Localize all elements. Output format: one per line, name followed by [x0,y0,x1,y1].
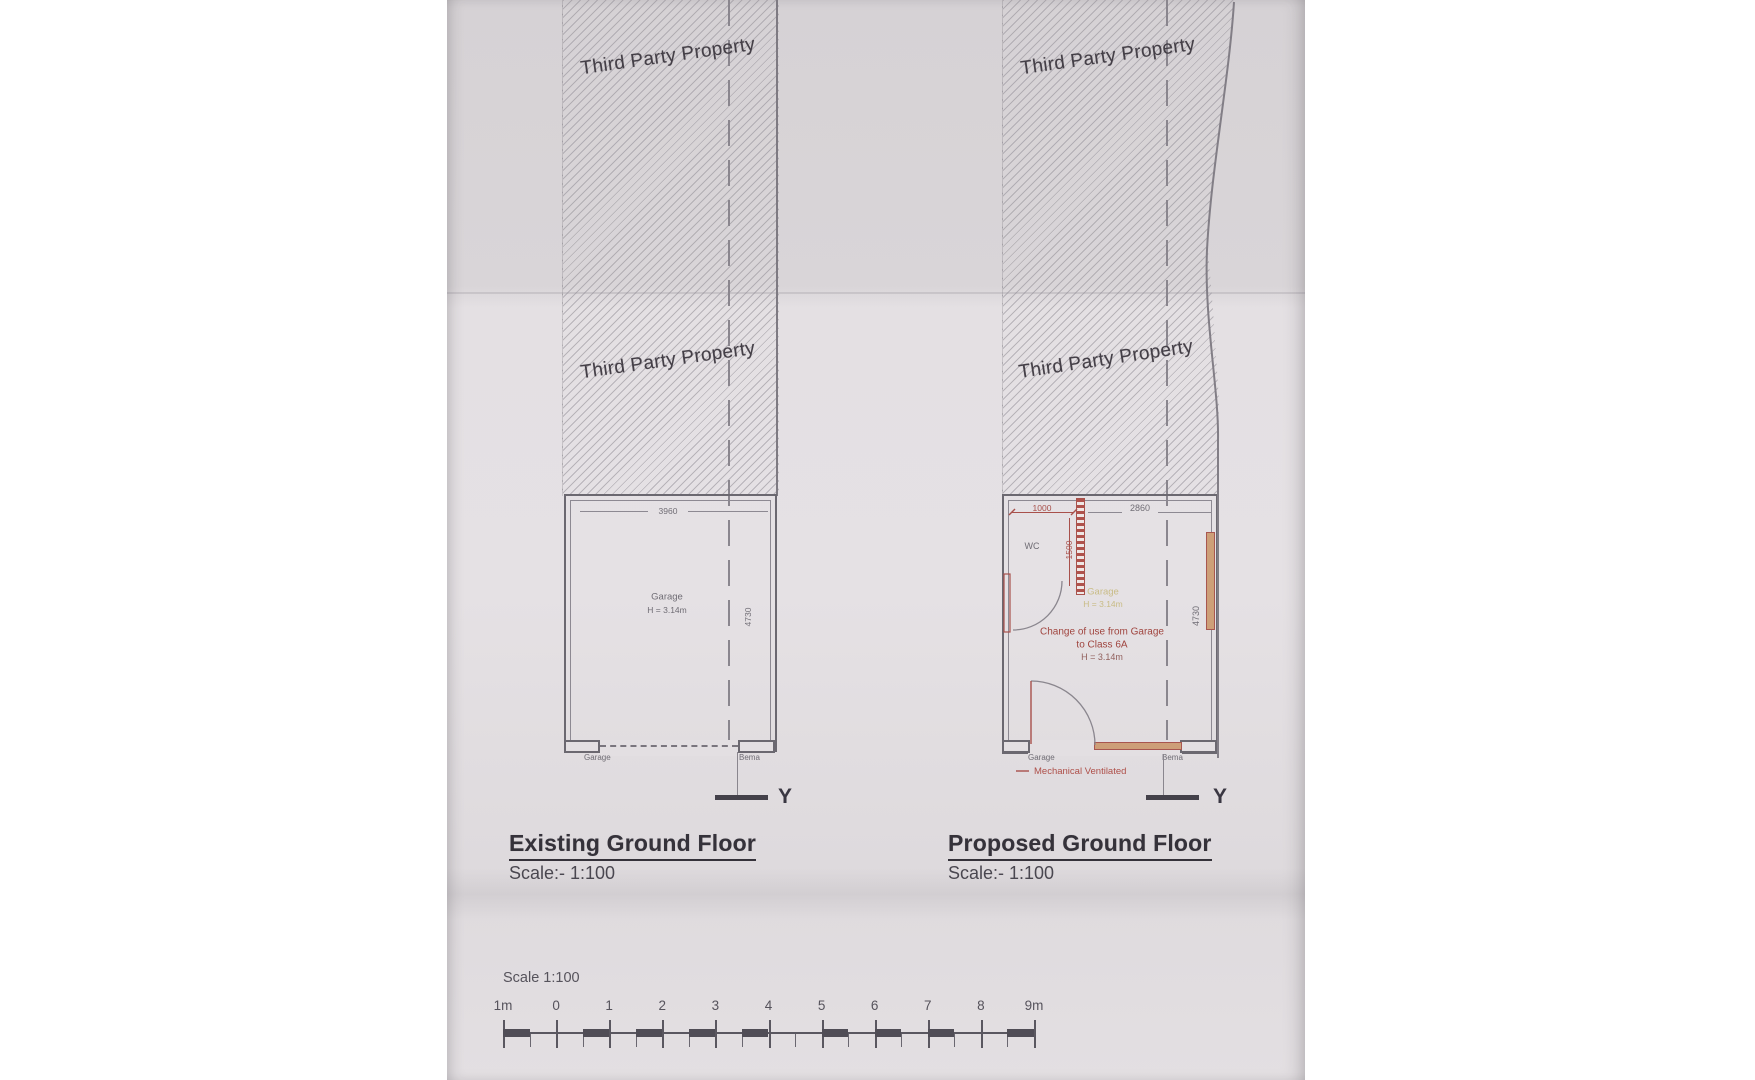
proposed-side-label: Bema [1162,753,1183,762]
infilled-garage-door [1094,742,1182,750]
ruler-half-tick [795,1034,796,1047]
boundary-line-existing [776,0,778,496]
existing-wall-stub-right [738,740,775,753]
ruler-number: 7 [924,998,932,1013]
ruler-number: 9m [1025,998,1044,1013]
existing-depth-dimension: 4730 [743,608,753,627]
ruler-tick [556,1020,558,1048]
ruler-number: 8 [977,998,985,1013]
proposed-depth-dimension: 4730 [1191,606,1201,626]
proposed-scale-label: Scale:- 1:100 [948,863,1054,884]
ruler-number: 2 [659,998,667,1013]
proposed-plan-inner-wall [1008,500,1212,746]
proposed-wall-stub-left [1002,740,1030,753]
ruler-number: 5 [818,998,826,1013]
existing-side-label: Bema [739,753,760,762]
proposed-wall-stub-right [1180,740,1217,753]
dimension-line [688,511,768,512]
dimension-line [1158,512,1212,513]
photographed-plan-sheet: Third Party Property Third Party Propert… [0,0,1755,1080]
proposed-garage-door-label: Garage [1028,753,1055,762]
ruler-dark-segment [583,1029,610,1037]
ruler-half-tick [954,1034,955,1047]
existing-plan-inner-wall [570,500,771,744]
ruler-number: 3 [712,998,720,1013]
ruler-tick [769,1020,771,1048]
existing-wall-stub-left [564,740,600,753]
existing-garage-door-dashed [600,745,738,747]
wc-width-dimension: 1000 [1033,503,1052,513]
ruler-dark-segment [822,1029,849,1037]
ruler-half-tick [530,1034,531,1047]
ruler-tick [715,1020,717,1048]
dimension-line [1088,512,1122,513]
existing-scale-label: Scale:- 1:100 [509,863,615,884]
ruler-tick [981,1020,983,1048]
ruler-dark-segment [1007,1029,1034,1037]
proposed-title: Proposed Ground Floor [948,830,1212,861]
section-line-proposed [1163,755,1164,795]
ruler-number: 1 [605,998,613,1013]
ruler-tick [662,1020,664,1048]
section-bar-existing [715,795,768,800]
dimension-line [580,511,648,512]
ruler-dark-segment [928,1029,955,1037]
wc-label: WC [1025,541,1040,551]
ruler-dark-segment [875,1029,902,1037]
ruler-half-tick [848,1034,849,1047]
ruler-number: 1m [494,998,513,1013]
existing-title: Existing Ground Floor [509,830,756,861]
ruler-number: 0 [552,998,560,1013]
existing-room-name: Garage [651,592,683,603]
ruler-tick [1034,1020,1036,1048]
ruler-half-tick [901,1034,902,1047]
existing-room-height: H = 3.14m [647,605,686,615]
section-marker-existing: Y [778,785,792,809]
mechanical-ventilated-note: Mechanical Ventilated [1034,766,1126,777]
scale-ruler: 1m0123456789m [503,998,1037,1060]
change-of-use-note-line2: to Class 6A [1076,640,1127,651]
ruler-dark-segment [636,1029,663,1037]
change-of-use-note-line1: Change of use from Garage [1040,627,1164,638]
existing-garage-door-label: Garage [584,753,611,762]
section-line-existing [737,752,738,795]
section-marker-proposed: Y [1213,785,1227,809]
old-room-name-faded: Garage [1087,587,1119,598]
proposed-width-dimension: 2860 [1130,503,1150,513]
ruler-tick [609,1020,611,1048]
new-wc-partition-wall [1076,498,1085,595]
wc-depth-dimension: 1500 [1064,541,1074,560]
ruler-number: 4 [765,998,773,1013]
ruler-dark-segment [689,1029,716,1037]
existing-width-dimension: 3960 [659,506,678,516]
section-bar-proposed [1146,795,1199,800]
ruler-dark-segment [742,1029,769,1037]
scalebar-label: Scale 1:100 [503,970,580,986]
new-window-right-wall [1206,532,1215,630]
ruler-dark-segment [503,1029,530,1037]
old-room-height-faded: H = 3.14m [1083,599,1122,609]
ruler-number: 6 [871,998,879,1013]
change-of-use-note-line3: H = 3.14m [1081,652,1123,662]
existing-door-opening [598,740,740,756]
